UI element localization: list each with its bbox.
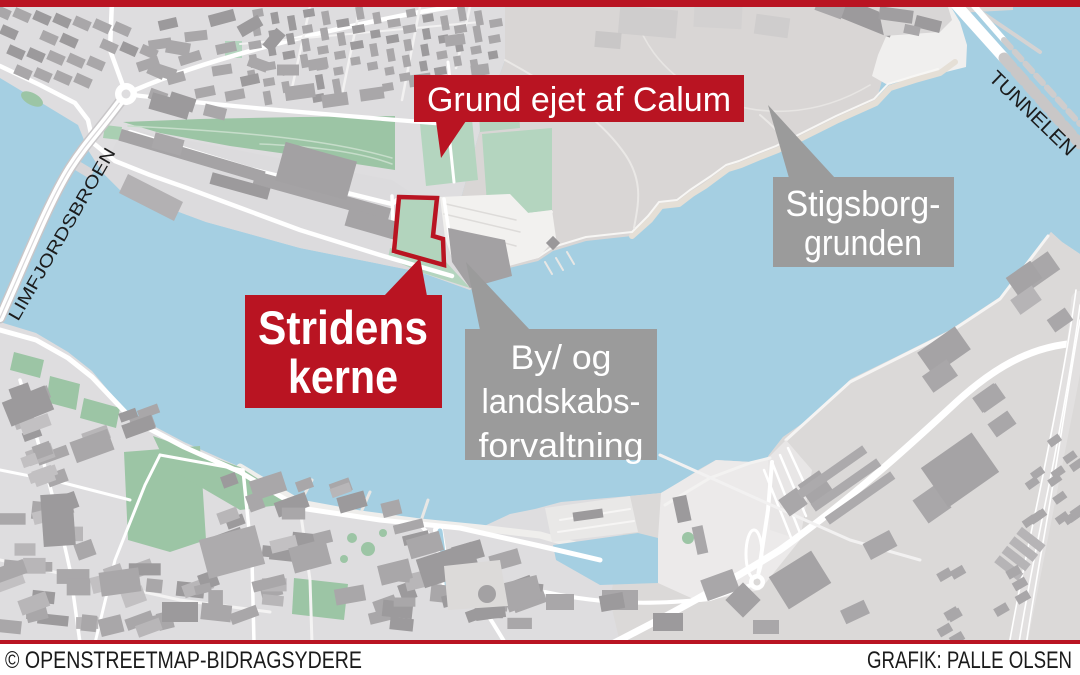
svg-text:grunden: grunden — [804, 222, 922, 263]
svg-text:kerne: kerne — [288, 350, 398, 403]
svg-text:forvaltning: forvaltning — [479, 427, 644, 465]
svg-text:GRAFIK: PALLE OLSEN: GRAFIK: PALLE OLSEN — [867, 647, 1072, 674]
svg-text:© OPENSTREETMAP-BIDRAGSYDERE: © OPENSTREETMAP-BIDRAGSYDERE — [5, 647, 362, 674]
svg-text:By/ og: By/ og — [511, 339, 612, 377]
svg-text:landskabs-: landskabs- — [482, 383, 641, 421]
svg-text:Stridens: Stridens — [258, 301, 428, 354]
svg-text:Stigsborg-: Stigsborg- — [786, 183, 941, 224]
svg-text:Grund ejet af Calum: Grund ejet af Calum — [427, 81, 731, 119]
